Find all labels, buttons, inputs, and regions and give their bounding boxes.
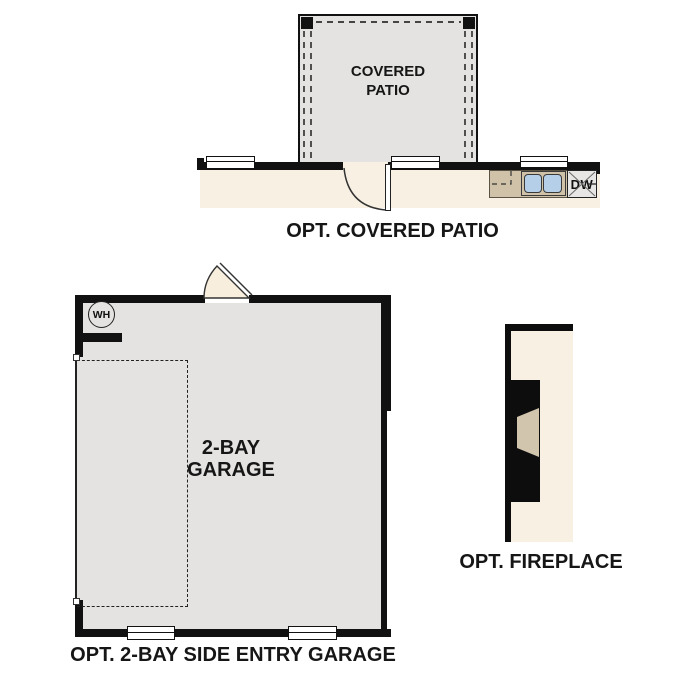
fireplace-top-wall [505,324,573,331]
water-heater-stub-wall [83,333,122,342]
opening-marker [73,598,80,605]
sink-basin-left [524,174,542,193]
opening-marker [73,354,80,361]
floor-plan-canvas: COVERED PATIO DW OPT. COVERED PATIO WH 2… [0,0,687,687]
garage-top-wall-right [249,295,391,303]
window-icon [288,626,337,640]
window-icon [520,156,568,168]
patio-post-right-icon [463,17,475,29]
patio-room-label-line2: PATIO [328,81,448,100]
garage-section-label: OPT. 2-BAY SIDE ENTRY GARAGE [28,644,438,667]
garage-right-wall-lower [381,411,387,637]
patio-room-label-line1: COVERED [328,62,448,81]
dishwasher-label: DW [571,177,594,192]
window-icon [127,626,175,640]
patio-door-leaf-icon [385,164,391,211]
patio-post-left-icon [301,17,313,29]
garage-left-wall-upper [75,295,83,357]
garage-bottom-wall [75,629,391,637]
window-icon [391,156,440,169]
garage-bay-dashed-outline [77,360,188,607]
sink-basin-right [543,174,562,193]
patio-door-opening [343,162,388,170]
garage-entry-door-swing-icon [204,266,249,298]
garage-room-label-line1: 2-BAY [161,437,301,459]
covered-patio-section-label: OPT. COVERED PATIO [240,220,545,243]
window-icon [206,156,255,169]
fireplace-box [511,380,540,502]
dishwasher: DW [567,170,597,198]
water-heater-label: WH [93,309,111,321]
garage-right-wall-upper [381,295,391,411]
garage-room-label: 2-BAY GARAGE [161,437,301,481]
water-heater-icon: WH [88,301,115,328]
patio-room-label: COVERED PATIO [328,62,448,100]
garage-room-label-line2: GARAGE [161,459,301,481]
fireplace-section-label: OPT. FIREPLACE [441,551,641,574]
garage-entry-door-leaf-line [220,263,252,295]
